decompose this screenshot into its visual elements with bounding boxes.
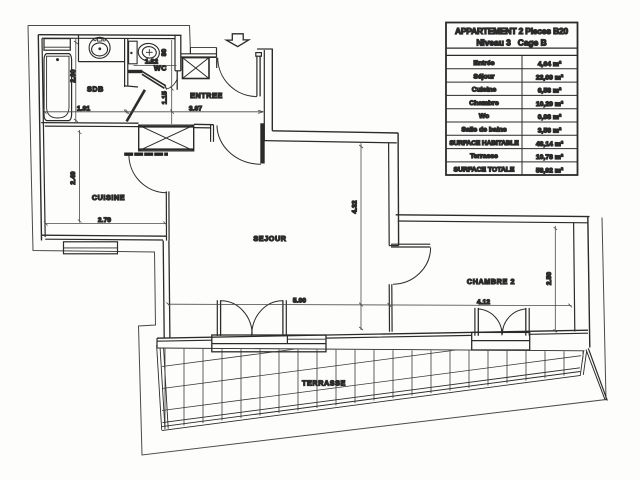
svg-text:4.32: 4.32: [352, 200, 359, 213]
svg-text:3,56 m²: 3,56 m²: [538, 128, 562, 135]
svg-text:Cuisine: Cuisine: [472, 87, 497, 94]
svg-text:3.07: 3.07: [189, 106, 202, 113]
svg-text:SDB: SDB: [87, 85, 104, 94]
svg-text:SURFACE HABITABLE: SURFACE HABITABLE: [449, 140, 519, 147]
svg-text:4.12: 4.12: [477, 299, 490, 306]
svg-text:2.49: 2.49: [70, 171, 77, 184]
svg-text:Wc: Wc: [479, 113, 489, 120]
svg-text:Terrasse: Terrasse: [470, 153, 498, 160]
svg-text:1.15: 1.15: [162, 91, 169, 104]
svg-text:SEJOUR: SEJOUR: [253, 234, 286, 243]
svg-text:58,92 m²: 58,92 m²: [536, 167, 564, 174]
svg-text:0,98 m²: 0,98 m²: [538, 114, 562, 121]
svg-text:4,64 m²: 4,64 m²: [538, 61, 562, 68]
svg-text:22,09 m²: 22,09 m²: [536, 74, 564, 81]
svg-text:APPARTEMENT 2 Pieces B20: APPARTEMENT 2 Pieces B20: [455, 26, 569, 36]
svg-text:10,78 m²: 10,78 m²: [536, 154, 564, 161]
svg-text:48,14 m²: 48,14 m²: [536, 141, 564, 148]
svg-text:CHAMBRE 2: CHAMBRE 2: [467, 277, 515, 286]
svg-text:WC: WC: [154, 64, 167, 73]
svg-text:Salle de bains: Salle de bains: [461, 127, 507, 134]
svg-text:1.91: 1.91: [77, 105, 90, 112]
svg-text:Entrée: Entrée: [473, 60, 494, 67]
svg-text:2.79: 2.79: [98, 217, 111, 224]
svg-text:SURFACE TOTALE: SURFACE TOTALE: [454, 167, 515, 174]
svg-text:10,29 m²: 10,29 m²: [536, 101, 564, 108]
svg-text:TERRASSE: TERRASSE: [302, 379, 346, 388]
svg-text:6,58 m²: 6,58 m²: [538, 88, 562, 95]
svg-text:Séjour: Séjour: [473, 73, 495, 80]
svg-text:Chambre: Chambre: [469, 100, 499, 107]
svg-text:CUISINE: CUISINE: [92, 193, 125, 202]
svg-text:5.00: 5.00: [293, 298, 306, 305]
svg-text:2.00: 2.00: [70, 69, 77, 82]
svg-text:80: 80: [161, 49, 168, 57]
svg-text:ENTREE: ENTREE: [190, 91, 223, 100]
svg-text:2.50: 2.50: [546, 272, 553, 285]
svg-text:Niveau 3 Cage B: Niveau 3 Cage B: [476, 38, 546, 48]
